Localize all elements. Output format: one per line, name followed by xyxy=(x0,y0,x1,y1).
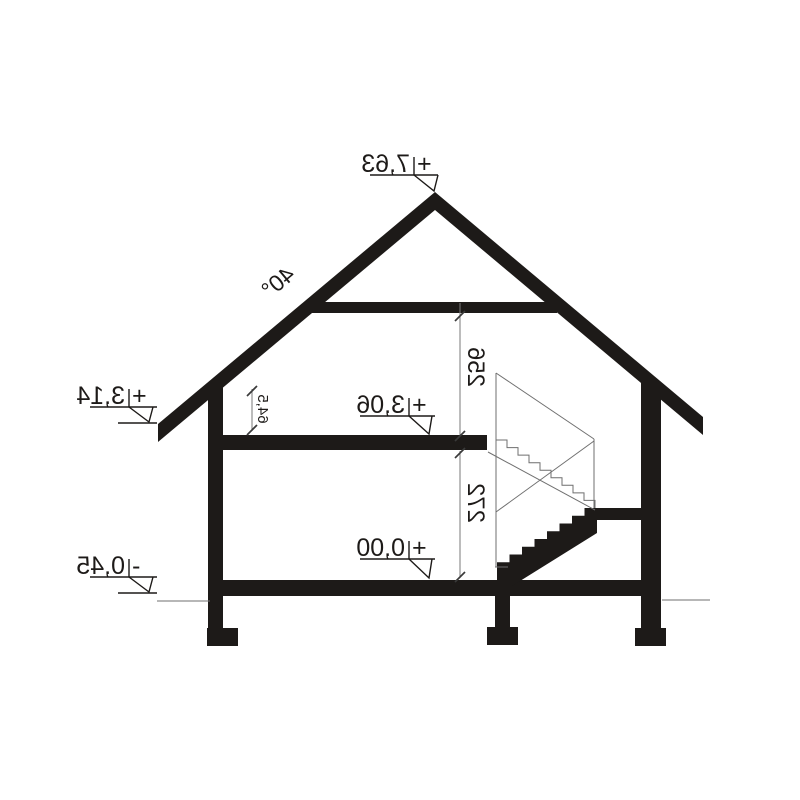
level-value: 0,45 xyxy=(76,552,125,580)
left-foundation-pier xyxy=(635,628,666,646)
section-drawing: 256 272 64,5 40° + 7,63 xyxy=(0,0,800,800)
drawing-canvas: 256 272 64,5 40° + 7,63 xyxy=(0,0,800,800)
level-marker-ground-floor: + 0,00 xyxy=(356,534,435,578)
level-marker-eaves: + 3,14 xyxy=(76,382,157,423)
level-marker-attic-floor: + 3,06 xyxy=(356,391,435,434)
dim-text-kneewall-height: 64,5 xyxy=(254,394,271,423)
level-marker-ridge: + 7,63 xyxy=(361,150,438,191)
right-foundation-pier xyxy=(207,628,238,646)
level-sign: - xyxy=(132,552,140,580)
level-value: 7,63 xyxy=(361,150,410,178)
level-sign: + xyxy=(132,382,147,410)
stair-upper-flight-steps xyxy=(496,440,595,508)
mirrored-drawing: 256 272 64,5 40° + 7,63 xyxy=(76,150,710,646)
roof-angle-label: 40° xyxy=(256,261,299,303)
dim-text-ground-height: 272 xyxy=(462,483,489,523)
upper-floor-slab xyxy=(208,435,487,450)
middle-foundation-pier xyxy=(487,627,518,645)
ground-floor-slab xyxy=(210,580,660,596)
level-value: 3,06 xyxy=(356,391,405,419)
stair-handrail-upper xyxy=(496,373,594,439)
level-sign: + xyxy=(412,391,427,419)
structure xyxy=(158,192,703,646)
collar-beam xyxy=(310,302,557,313)
level-value: 0,00 xyxy=(356,534,405,562)
stair-lower-flight xyxy=(497,508,597,586)
level-value: 3,14 xyxy=(76,382,125,410)
level-sign: + xyxy=(412,534,427,562)
roof-rafter-left xyxy=(435,192,703,435)
level-sign: + xyxy=(417,150,432,178)
middle-foundation-post xyxy=(495,594,510,628)
dimension-knee-wall: 64,5 xyxy=(247,386,271,435)
stair-landing xyxy=(595,508,644,520)
dimension-ground-floor-height: 272 xyxy=(455,448,489,582)
dimension-attic-height: 256 xyxy=(455,303,489,441)
dim-text-attic-height: 256 xyxy=(462,347,489,387)
level-marker-terrain: - 0,45 xyxy=(76,552,157,593)
stair-stringer-line xyxy=(488,452,595,510)
